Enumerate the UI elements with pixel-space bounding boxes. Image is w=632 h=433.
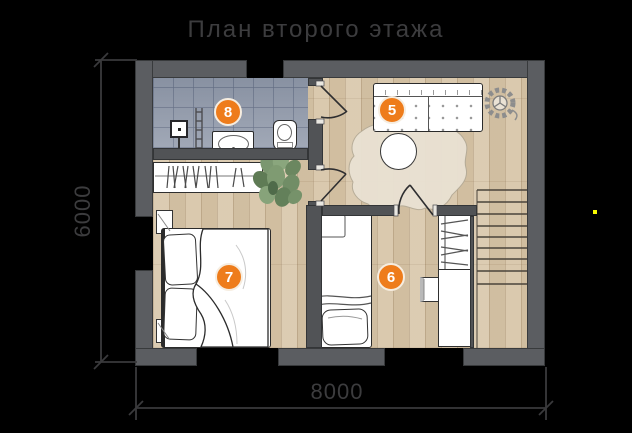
pillow	[163, 287, 198, 340]
wall-bottom-left	[135, 348, 197, 366]
sofa-cushion-right	[429, 96, 482, 131]
shower-head	[178, 128, 181, 131]
wall-bathroom-right-a	[308, 78, 323, 86]
room-badge-label: 8	[224, 104, 232, 121]
room-badge-7: 7	[215, 263, 243, 291]
wall-left-upper	[135, 60, 153, 217]
dimension-vertical-label: 6000	[70, 181, 96, 241]
indicator-dot	[593, 210, 597, 214]
wall-bathroom-bottom	[153, 148, 308, 160]
wall-bathroom-right-b	[308, 119, 323, 170]
page-title: План второго этажа	[0, 16, 632, 44]
room-badge-label: 7	[225, 269, 233, 286]
room-badge-8: 8	[214, 98, 242, 126]
wall-bottom-middle	[278, 348, 385, 366]
toilet-bowl	[277, 124, 292, 141]
wardrobe-hangers	[438, 214, 471, 270]
room-badge-label: 6	[387, 269, 395, 286]
room-badge-5: 5	[378, 96, 406, 124]
dimension-horizontal-label: 8000	[287, 379, 387, 405]
wall-hall-bedroom-a	[322, 205, 398, 216]
cabinet	[438, 269, 471, 347]
wall-hall-bedroom-b	[433, 205, 477, 216]
room-badge-6: 6	[377, 263, 405, 291]
wall-bedrooms-divider	[306, 205, 322, 348]
wardrobe-rack	[153, 162, 263, 193]
wall-right	[527, 60, 545, 366]
wall-stairs-partition	[470, 216, 474, 348]
shower-stand	[170, 120, 188, 138]
room-badge-label: 5	[388, 102, 396, 119]
floor-plan-canvas: План второго этажа	[0, 0, 632, 433]
pillow	[163, 233, 199, 286]
wall-top-right	[283, 60, 545, 78]
pillow	[321, 308, 368, 346]
toilet	[273, 120, 297, 151]
wall-bottom-right	[463, 348, 545, 366]
bedside-desk	[420, 277, 440, 302]
coffee-table	[380, 133, 417, 170]
